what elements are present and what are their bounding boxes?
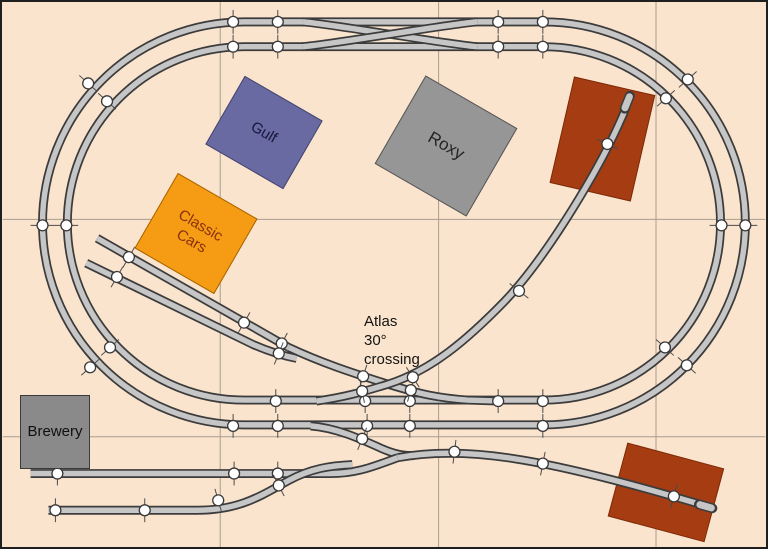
rail-joint bbox=[537, 35, 548, 59]
rail-joint bbox=[493, 10, 504, 34]
rail-joint bbox=[733, 220, 757, 231]
rail-joint bbox=[272, 414, 283, 438]
building-classic-cars-label: Classic Cars bbox=[166, 206, 226, 261]
building-roxy-label: Roxy bbox=[424, 128, 468, 165]
track-bumper bbox=[625, 96, 630, 109]
rail-joint bbox=[228, 10, 239, 34]
rail-joint bbox=[270, 389, 281, 413]
track-layout-drawing bbox=[2, 2, 766, 547]
rail-joint bbox=[50, 498, 61, 522]
rail-joint bbox=[272, 35, 283, 59]
rail-joint bbox=[493, 35, 504, 59]
rail-joint bbox=[537, 389, 548, 413]
rail-joint bbox=[710, 220, 734, 231]
rail-joint bbox=[54, 220, 78, 231]
building-brewery[interactable]: Brewery bbox=[20, 395, 90, 469]
rail-joint bbox=[228, 35, 239, 59]
rail-joint bbox=[493, 389, 504, 413]
rail-joint bbox=[31, 220, 55, 231]
building-brewery-label: Brewery bbox=[27, 423, 82, 441]
track-plan-canvas[interactable]: Gulf Classic Cars Roxy Brewery Atlas 30°… bbox=[0, 0, 768, 549]
crossing-annotation: Atlas 30° crossing bbox=[364, 313, 420, 369]
rail-joint bbox=[537, 414, 548, 438]
rail-joint bbox=[229, 462, 240, 486]
building-shed-upper[interactable] bbox=[550, 77, 655, 201]
rail-joint bbox=[535, 451, 550, 476]
rail-joint bbox=[228, 414, 239, 438]
track-bumper bbox=[699, 504, 712, 508]
rail-joint bbox=[448, 439, 462, 464]
rail-joint bbox=[272, 10, 283, 34]
rail-joint bbox=[139, 498, 150, 522]
rail-joint bbox=[537, 10, 548, 34]
rail-joint bbox=[404, 414, 415, 438]
building-gulf-label: Gulf bbox=[248, 117, 281, 146]
